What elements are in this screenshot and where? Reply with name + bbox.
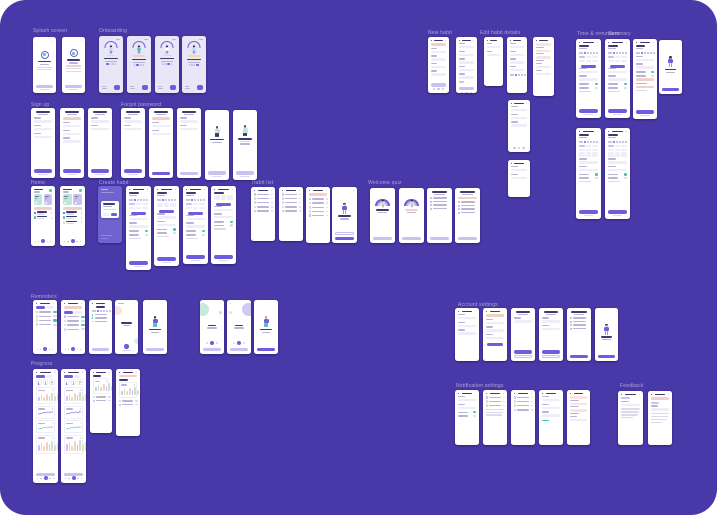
nav-icon[interactable] xyxy=(77,349,79,351)
day-circle[interactable] xyxy=(581,52,583,54)
back-icon[interactable] xyxy=(511,163,513,165)
bottom-nav[interactable] xyxy=(36,347,55,351)
screen-forgot-3[interactable] xyxy=(177,108,201,178)
day-circle[interactable] xyxy=(622,52,624,54)
primary-button[interactable] xyxy=(402,237,422,240)
nav-fab-button[interactable] xyxy=(41,239,45,243)
day-circle[interactable] xyxy=(92,310,94,312)
option-pill[interactable] xyxy=(579,149,585,152)
toggle[interactable] xyxy=(651,75,655,77)
primary-button[interactable] xyxy=(146,348,165,351)
option-tile[interactable] xyxy=(157,203,163,208)
prev-icon[interactable] xyxy=(233,342,235,344)
primary-button[interactable] xyxy=(36,85,54,88)
action-icon[interactable] xyxy=(81,303,83,305)
screen-quiz-welcome-2[interactable] xyxy=(399,188,424,243)
day-circle[interactable] xyxy=(103,310,105,312)
screen-quiz-questions-1[interactable] xyxy=(427,188,452,243)
option-pill[interactable] xyxy=(592,60,598,63)
option-pill[interactable] xyxy=(621,149,627,152)
answer-option[interactable] xyxy=(570,321,589,323)
list-item[interactable] xyxy=(36,315,55,318)
primary-button[interactable] xyxy=(63,169,82,172)
option-pill[interactable] xyxy=(592,145,598,148)
action-icon[interactable] xyxy=(526,103,528,105)
list-item[interactable] xyxy=(254,206,273,209)
habit-row[interactable] xyxy=(34,216,53,219)
nav-icon[interactable] xyxy=(52,349,54,351)
option-pill[interactable] xyxy=(608,145,614,148)
option-pill[interactable] xyxy=(608,60,614,63)
toggle[interactable] xyxy=(81,324,85,326)
screen-edit-habit-2[interactable] xyxy=(533,37,554,96)
toggle[interactable] xyxy=(53,319,57,321)
screen-onboarding-1[interactable] xyxy=(99,36,123,93)
list-item[interactable] xyxy=(514,400,533,403)
day-circle[interactable] xyxy=(191,199,193,201)
toggle[interactable] xyxy=(173,228,177,230)
option-pill[interactable] xyxy=(586,149,592,152)
toggle[interactable] xyxy=(53,324,57,326)
option-tile[interactable] xyxy=(579,152,585,157)
list-item[interactable] xyxy=(254,201,273,204)
toggle[interactable] xyxy=(81,320,85,322)
back-icon[interactable] xyxy=(510,40,512,42)
day-circle[interactable] xyxy=(159,199,161,201)
confirm-button[interactable] xyxy=(111,213,117,216)
action-icon[interactable] xyxy=(136,372,138,374)
day-circle[interactable] xyxy=(100,310,102,312)
nav-icon[interactable] xyxy=(76,241,78,243)
check-dot[interactable] xyxy=(81,212,83,214)
action-icon[interactable] xyxy=(503,393,505,395)
nav-icon[interactable] xyxy=(64,241,66,243)
summary-card[interactable] xyxy=(73,194,82,205)
screen-onboarding-2[interactable] xyxy=(127,36,151,93)
screen-forgot-success-1[interactable] xyxy=(205,110,229,180)
list-item[interactable] xyxy=(486,400,505,403)
back-icon[interactable] xyxy=(570,393,572,395)
figma-canvas[interactable]: Splash screenOnboardingNew habitEdit hab… xyxy=(0,0,717,515)
screen-time-reminders-3[interactable] xyxy=(576,128,601,219)
primary-button[interactable] xyxy=(431,83,447,86)
avatar[interactable] xyxy=(79,189,82,192)
option-tile[interactable] xyxy=(586,152,592,157)
list-item[interactable] xyxy=(64,320,83,323)
next-button[interactable] xyxy=(170,85,177,91)
option-tile[interactable] xyxy=(592,152,598,157)
list-item[interactable] xyxy=(36,319,55,322)
nav-icon[interactable] xyxy=(37,349,39,351)
primary-button[interactable] xyxy=(157,257,177,260)
toggle[interactable] xyxy=(173,232,177,234)
toggle[interactable] xyxy=(651,71,655,73)
social-icon[interactable] xyxy=(437,88,439,90)
day-circle[interactable] xyxy=(610,141,612,143)
option-pill[interactable] xyxy=(586,60,592,63)
segment-active[interactable] xyxy=(36,375,45,378)
nav-icon[interactable] xyxy=(80,241,82,243)
screen-timer-1[interactable] xyxy=(200,300,224,354)
screen-splash-2[interactable] xyxy=(62,37,85,93)
segment[interactable] xyxy=(46,375,53,378)
primary-button[interactable] xyxy=(608,109,628,112)
primary-button[interactable] xyxy=(636,110,655,113)
day-circle[interactable] xyxy=(584,52,586,54)
screen-habit-list-empty[interactable] xyxy=(332,187,357,243)
day-circle[interactable] xyxy=(134,199,136,201)
list-item[interactable] xyxy=(282,193,301,196)
primary-button[interactable] xyxy=(124,169,143,172)
screen-new-habit-3[interactable] xyxy=(484,37,503,86)
check-dot[interactable] xyxy=(81,221,83,223)
toggle[interactable] xyxy=(145,234,149,236)
nav-icon[interactable] xyxy=(40,349,42,351)
day-circle[interactable] xyxy=(143,199,145,201)
toggle[interactable] xyxy=(230,221,234,223)
option-pill[interactable] xyxy=(199,207,205,210)
back-icon[interactable] xyxy=(487,40,489,42)
screen-create-habit-modal[interactable] xyxy=(98,186,122,243)
list-item[interactable] xyxy=(282,206,301,209)
habit-row[interactable] xyxy=(34,211,53,214)
day-circle[interactable] xyxy=(137,199,139,201)
nav-icon[interactable] xyxy=(38,241,40,243)
primary-button[interactable] xyxy=(335,237,355,240)
back-icon[interactable] xyxy=(93,372,95,374)
screen-account-4[interactable] xyxy=(539,308,563,361)
primary-button[interactable] xyxy=(91,169,110,172)
primary-button[interactable] xyxy=(236,171,255,174)
nav-icon[interactable] xyxy=(80,349,82,351)
list-item[interactable] xyxy=(36,311,55,314)
nav-icon[interactable] xyxy=(68,349,70,351)
day-circle[interactable] xyxy=(647,52,649,54)
social-icon[interactable] xyxy=(470,92,472,93)
social-icon[interactable] xyxy=(433,88,435,90)
screen-create-habit-3[interactable] xyxy=(183,186,208,264)
bottom-nav[interactable] xyxy=(64,476,84,480)
list-item[interactable] xyxy=(309,198,328,201)
nav-icon[interactable] xyxy=(37,478,39,480)
day-circle[interactable] xyxy=(200,199,202,201)
day-circle[interactable] xyxy=(608,52,610,54)
list-item[interactable] xyxy=(64,328,83,331)
screen-timer-done[interactable] xyxy=(254,300,278,354)
nav-fab-button[interactable] xyxy=(71,347,75,351)
secondary-button[interactable] xyxy=(335,232,355,235)
day-circle[interactable] xyxy=(619,141,621,143)
day-circle[interactable] xyxy=(186,199,188,201)
day-circle[interactable] xyxy=(616,141,618,143)
back-icon[interactable] xyxy=(458,311,460,313)
nav-icon[interactable] xyxy=(67,241,69,243)
screen-habit-list-1[interactable] xyxy=(251,187,275,241)
habit-row[interactable] xyxy=(63,216,83,219)
option-pill[interactable] xyxy=(592,56,598,59)
nav-icon[interactable] xyxy=(81,478,83,480)
nav-icon[interactable] xyxy=(68,478,70,480)
skip-link[interactable] xyxy=(144,39,148,40)
screen-notif-5[interactable] xyxy=(567,390,590,445)
screen-habit-list-3[interactable] xyxy=(306,187,330,243)
next-button[interactable] xyxy=(142,85,149,91)
day-circle[interactable] xyxy=(106,310,108,312)
option-pill[interactable] xyxy=(193,207,199,210)
toggle[interactable] xyxy=(473,411,477,413)
nav-icon[interactable] xyxy=(53,478,55,480)
day-circle[interactable] xyxy=(512,74,514,76)
option-pill[interactable] xyxy=(621,60,627,63)
screen-account-1[interactable] xyxy=(455,308,479,361)
list-item[interactable] xyxy=(282,197,301,200)
nav-fab-button[interactable] xyxy=(72,476,76,480)
answer-option[interactable] xyxy=(570,317,589,319)
nav-icon[interactable] xyxy=(49,349,51,351)
primary-button[interactable] xyxy=(92,348,110,351)
day-circle[interactable] xyxy=(653,52,655,54)
day-circle[interactable] xyxy=(510,74,512,76)
day-circle[interactable] xyxy=(94,310,96,312)
screen-progress-2[interactable] xyxy=(61,369,86,483)
back-icon[interactable] xyxy=(608,42,610,44)
screen-account-2[interactable] xyxy=(483,308,507,361)
toggle[interactable] xyxy=(81,316,85,318)
option-pill[interactable] xyxy=(586,56,592,59)
screen-quiz-questions-2[interactable] xyxy=(455,188,480,243)
day-circle[interactable] xyxy=(610,52,612,54)
social-icon[interactable] xyxy=(461,92,463,93)
radio[interactable] xyxy=(430,197,432,199)
list-item[interactable] xyxy=(36,323,55,326)
day-circle[interactable] xyxy=(638,52,640,54)
radio[interactable] xyxy=(570,321,572,323)
social-icon[interactable] xyxy=(513,147,515,149)
answer-option[interactable] xyxy=(430,201,450,203)
social-icon[interactable] xyxy=(518,147,520,149)
day-circle[interactable] xyxy=(622,141,624,143)
day-circle[interactable] xyxy=(608,141,610,143)
screen-time-reminders-2[interactable] xyxy=(605,39,630,118)
next-button[interactable] xyxy=(114,85,121,91)
screen-splash-1[interactable] xyxy=(33,37,56,93)
day-circle[interactable] xyxy=(194,199,196,201)
back-icon[interactable] xyxy=(651,394,653,396)
back-icon[interactable] xyxy=(621,394,623,396)
screen-time-reminders-1[interactable] xyxy=(576,39,601,118)
option-pill[interactable] xyxy=(136,207,142,210)
primary-button[interactable] xyxy=(152,172,171,175)
toggle[interactable] xyxy=(624,83,628,85)
answer-option[interactable] xyxy=(458,205,478,207)
screen-account-done[interactable] xyxy=(595,308,618,361)
day-circle[interactable] xyxy=(596,141,598,143)
option-tile[interactable] xyxy=(221,195,227,200)
action-icon[interactable] xyxy=(531,393,533,395)
toggle[interactable] xyxy=(624,173,628,175)
primary-button[interactable] xyxy=(180,172,199,175)
nav-icon[interactable] xyxy=(35,241,37,243)
day-circle[interactable] xyxy=(590,52,592,54)
option-tile[interactable] xyxy=(615,152,621,157)
bottom-nav[interactable] xyxy=(64,347,83,351)
primary-button[interactable] xyxy=(459,87,475,90)
next-button[interactable] xyxy=(197,85,204,91)
check-dot[interactable] xyxy=(51,212,53,214)
day-circle[interactable] xyxy=(596,52,598,54)
nav-fab-button[interactable] xyxy=(43,347,47,351)
primary-button[interactable] xyxy=(34,169,53,172)
radio[interactable] xyxy=(570,324,572,326)
day-circle[interactable] xyxy=(162,199,164,201)
nav-fab-button[interactable] xyxy=(71,239,75,243)
primary-button[interactable] xyxy=(598,355,616,358)
screen-forgot-success-2[interactable] xyxy=(233,110,257,180)
action-icon[interactable] xyxy=(271,190,273,192)
list-item[interactable] xyxy=(514,409,533,412)
day-circle[interactable] xyxy=(625,141,627,143)
segment[interactable] xyxy=(46,306,55,309)
screen-timer-2[interactable] xyxy=(227,300,251,354)
toggle[interactable] xyxy=(624,177,628,179)
primary-button[interactable] xyxy=(542,350,561,353)
option-tile[interactable] xyxy=(608,152,614,157)
action-icon[interactable] xyxy=(147,189,149,191)
segment-active[interactable] xyxy=(36,306,45,309)
day-circle[interactable] xyxy=(579,141,581,143)
answer-option[interactable] xyxy=(458,212,478,214)
cancel-button[interactable] xyxy=(103,213,109,216)
option-pill[interactable] xyxy=(129,203,135,206)
day-circle[interactable] xyxy=(587,141,589,143)
option-pill[interactable] xyxy=(615,145,621,148)
nav-icon[interactable] xyxy=(40,478,42,480)
screen-account-5[interactable] xyxy=(567,308,591,361)
radio[interactable] xyxy=(458,212,460,214)
skip-link[interactable] xyxy=(116,39,120,40)
back-icon[interactable] xyxy=(157,189,159,191)
back-icon[interactable] xyxy=(214,189,216,191)
primary-button[interactable] xyxy=(203,348,222,351)
option-pill[interactable] xyxy=(615,60,621,63)
day-circle[interactable] xyxy=(188,199,190,201)
toggle[interactable] xyxy=(53,311,57,313)
segment[interactable] xyxy=(74,375,81,378)
screen-new-habit-2[interactable] xyxy=(456,37,477,93)
action-icon[interactable] xyxy=(668,394,670,396)
action-icon[interactable] xyxy=(82,372,84,374)
segment-active[interactable] xyxy=(64,311,73,314)
primary-button[interactable] xyxy=(373,237,393,240)
back-icon[interactable] xyxy=(486,393,488,395)
answer-option[interactable] xyxy=(570,328,589,330)
back-icon[interactable] xyxy=(608,131,610,133)
day-circle[interactable] xyxy=(616,52,618,54)
list-item[interactable] xyxy=(309,206,328,209)
day-circle[interactable] xyxy=(515,74,517,76)
primary-button[interactable] xyxy=(579,210,599,213)
action-icon[interactable] xyxy=(653,42,655,44)
action-icon[interactable] xyxy=(597,42,599,44)
nav-icon[interactable] xyxy=(65,349,67,351)
day-circle[interactable] xyxy=(97,310,99,312)
back-icon[interactable] xyxy=(458,393,460,395)
toggle[interactable] xyxy=(473,415,477,417)
back-icon[interactable] xyxy=(119,372,121,374)
radio[interactable] xyxy=(458,205,460,207)
screen-habit-list-2[interactable] xyxy=(279,187,303,241)
day-circle[interactable] xyxy=(587,52,589,54)
day-circle[interactable] xyxy=(593,52,595,54)
screen-create-habit-4[interactable] xyxy=(211,186,236,264)
screen-notif-2[interactable] xyxy=(483,390,507,445)
answer-option[interactable] xyxy=(430,208,450,210)
back-icon[interactable] xyxy=(64,303,66,305)
day-circle[interactable] xyxy=(174,199,176,201)
screen-summary-done[interactable] xyxy=(659,40,682,94)
back-icon[interactable] xyxy=(536,40,538,42)
check-dot[interactable] xyxy=(81,217,83,219)
toggle[interactable] xyxy=(53,315,57,317)
toggle[interactable] xyxy=(595,173,599,175)
day-circle[interactable] xyxy=(613,141,615,143)
habit-row[interactable] xyxy=(63,221,83,224)
skip-link[interactable] xyxy=(172,39,176,40)
option-pill[interactable] xyxy=(186,203,192,206)
primary-button[interactable] xyxy=(579,109,599,112)
list-item[interactable] xyxy=(64,324,83,327)
list-item[interactable] xyxy=(486,404,505,407)
action-icon[interactable] xyxy=(473,40,475,42)
toggle[interactable] xyxy=(624,87,628,89)
option-pill[interactable] xyxy=(621,145,627,148)
screen-reminders-schedule[interactable] xyxy=(89,300,112,354)
social-icon[interactable] xyxy=(465,92,467,93)
day-circle[interactable] xyxy=(168,199,170,201)
option-pill[interactable] xyxy=(608,149,614,152)
screen-signup-2[interactable] xyxy=(60,108,84,178)
answer-option[interactable] xyxy=(458,201,478,203)
list-item[interactable] xyxy=(254,210,273,213)
summary-card[interactable] xyxy=(34,194,43,205)
day-circle[interactable] xyxy=(157,199,159,201)
screen-create-habit-2[interactable] xyxy=(154,186,179,266)
screen-signup-3[interactable] xyxy=(88,108,112,178)
skip-link[interactable] xyxy=(199,39,203,40)
primary-button[interactable] xyxy=(208,171,227,174)
option-tile[interactable] xyxy=(227,195,233,200)
back-icon[interactable] xyxy=(282,190,284,192)
day-circle[interactable] xyxy=(579,52,581,54)
day-circle[interactable] xyxy=(590,141,592,143)
back-icon[interactable] xyxy=(254,190,256,192)
back-icon[interactable] xyxy=(542,393,544,395)
toggle[interactable] xyxy=(145,230,149,232)
toggle[interactable] xyxy=(81,328,85,330)
radio[interactable] xyxy=(570,328,572,330)
option-pill[interactable] xyxy=(615,56,621,59)
nav-icon[interactable] xyxy=(77,478,79,480)
action-icon[interactable] xyxy=(54,372,56,374)
list-item[interactable] xyxy=(254,197,273,200)
back-icon[interactable] xyxy=(309,190,311,192)
action-icon[interactable] xyxy=(204,189,206,191)
radio[interactable] xyxy=(430,204,432,206)
bottom-nav[interactable] xyxy=(36,476,56,480)
primary-button[interactable] xyxy=(129,261,149,264)
day-circle[interactable] xyxy=(613,52,615,54)
screen-home-1[interactable] xyxy=(31,186,55,246)
